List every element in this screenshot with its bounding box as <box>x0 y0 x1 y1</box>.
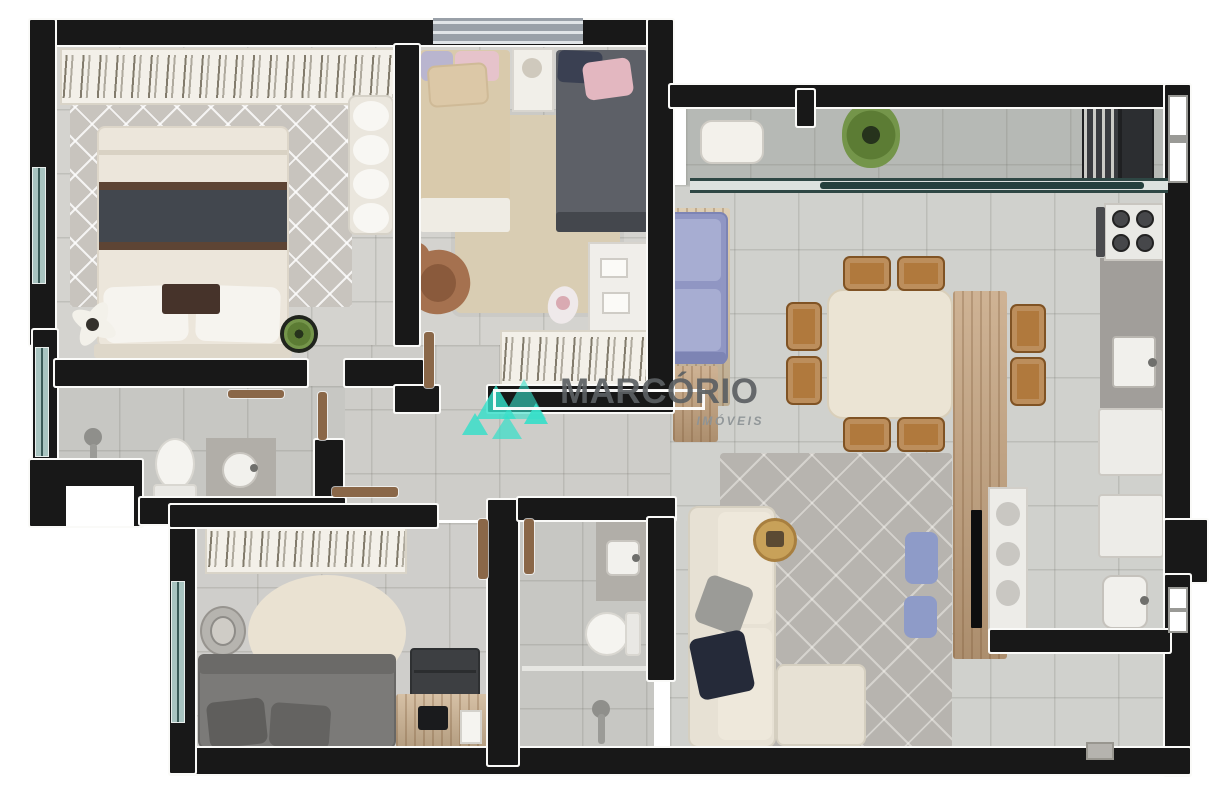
grill-grate <box>1082 101 1120 181</box>
wall-kids-living <box>648 20 673 390</box>
door-leaf-hall <box>332 487 398 497</box>
bed-master-runner-bottom <box>99 242 287 250</box>
teddy-bear-inner <box>420 264 456 302</box>
dining-chair-bottom-2 <box>897 417 945 452</box>
bed-master-fold <box>99 150 287 155</box>
window-left-lower <box>36 348 48 456</box>
toilet-bath2-bowl <box>585 612 629 656</box>
dining-chair-top-1 <box>843 256 891 291</box>
wall-bottom <box>170 748 1190 774</box>
flower-decor-center <box>86 318 99 331</box>
dining-chair-left-2 <box>786 356 822 405</box>
pouf-blue-1 <box>905 532 938 584</box>
desk-kids <box>588 242 650 334</box>
dining-chair-bottom-1 <box>843 417 891 452</box>
dining-chair-top-2 <box>897 256 945 291</box>
nightstand-decor <box>522 58 542 78</box>
wall-kids-bottom <box>488 386 673 412</box>
washer <box>1098 494 1164 558</box>
outside-notch <box>66 486 134 526</box>
toilet-bath2-tank <box>625 612 641 656</box>
plant-master <box>284 319 314 349</box>
window-balcony-right <box>1168 95 1188 183</box>
wall-master-bottom <box>55 360 307 386</box>
wall-bath2-left <box>488 500 518 765</box>
cooktop-knobs <box>1096 207 1105 257</box>
burner-1 <box>1112 210 1130 228</box>
bed-kids-right-foot <box>556 212 648 232</box>
bunny-toy-ear <box>556 296 570 310</box>
laptop-office <box>418 706 448 730</box>
pillow-pink-right <box>582 57 635 101</box>
door-leaf-bath2 <box>524 519 534 574</box>
sofa-blue-cushion-1 <box>671 219 721 281</box>
bench-pillow-1 <box>353 101 389 131</box>
closet-kids <box>500 330 650 388</box>
wall-service-bottom <box>990 630 1170 652</box>
bench-pillow-3 <box>353 169 389 199</box>
wall-balcony-stub <box>797 90 814 126</box>
bench-balcony <box>700 120 764 164</box>
shower-stem-bath2 <box>598 714 605 744</box>
bed-kids-left-sheet <box>420 198 510 232</box>
basket-office-inner <box>210 616 236 646</box>
glass-door-bar <box>820 182 1144 189</box>
dining-table <box>827 289 953 419</box>
burner-4 <box>1136 234 1154 252</box>
coffee-table-decor <box>766 531 784 547</box>
wall-office-top <box>170 505 437 527</box>
door-leaf-kids <box>424 332 434 388</box>
wall-kids-bottom-stub <box>395 386 439 412</box>
ac-vent <box>1086 742 1114 760</box>
wall-master-bottom-2 <box>345 360 423 386</box>
window-master <box>33 168 45 283</box>
desk-kids-paper-1 <box>600 258 628 278</box>
window-office <box>172 582 184 722</box>
wall-bath2-top <box>518 498 675 520</box>
bed-master-runner-top <box>99 182 287 190</box>
cabinet-decor-2 <box>996 542 1020 566</box>
wall-bath2-right <box>648 518 674 680</box>
fridge <box>1098 408 1164 476</box>
laundry-faucet <box>1140 596 1149 605</box>
pouf-blue-2 <box>904 596 937 638</box>
window-kids-top <box>433 18 583 44</box>
door-leaf-bath1 <box>318 392 327 440</box>
sofa-blue-arm <box>668 352 726 364</box>
toilet-bath1-bowl <box>155 438 195 490</box>
floorplan-canvas: MARCÓRIO IMÓVEIS <box>0 0 1226 800</box>
bench-pillow-4 <box>353 203 389 233</box>
sofa-office-back <box>198 654 396 674</box>
pillow-beige <box>427 62 490 108</box>
dining-chair-right-1 <box>1010 304 1046 353</box>
dresser-office-line <box>414 670 476 673</box>
faucet-bath1 <box>250 464 258 472</box>
dining-chair-left-1 <box>786 302 822 351</box>
plant-balcony <box>842 102 900 168</box>
wall-master-kids <box>395 45 419 345</box>
closet-office <box>205 524 407 574</box>
sofa-blue-cushion-2 <box>671 289 721 351</box>
cushion-office-1 <box>206 697 268 749</box>
shower-glass-bath2 <box>522 666 650 671</box>
window-service <box>1168 587 1188 633</box>
wall-balcony-top <box>670 85 1182 107</box>
book-office <box>460 710 482 744</box>
closet-master <box>60 48 395 105</box>
desk-kids-paper-2 <box>602 292 630 314</box>
towel-rack-bath1 <box>228 390 284 398</box>
bed-master-tray <box>162 284 220 314</box>
cabinet-decor-1 <box>996 502 1020 526</box>
kitchen-faucet <box>1148 358 1157 367</box>
burner-2 <box>1136 210 1154 228</box>
bed-master-runner <box>99 190 287 242</box>
tv <box>971 510 982 628</box>
door-leaf-office <box>478 519 488 579</box>
faucet-bath2 <box>632 554 640 562</box>
bed-master-headboard <box>94 344 292 358</box>
dresser-office <box>410 648 480 698</box>
cabinet-decor-3 <box>996 580 1020 606</box>
bench-pillow-2 <box>353 135 389 165</box>
dining-chair-right-2 <box>1010 357 1046 406</box>
grill-body <box>1120 101 1154 181</box>
entry-door-leaf <box>673 366 718 442</box>
cooktop <box>1104 203 1164 261</box>
cushion-office-2 <box>269 702 332 750</box>
wall-right-jog <box>1165 520 1207 582</box>
sofa-cream-chaise <box>776 664 866 746</box>
burner-3 <box>1112 234 1130 252</box>
